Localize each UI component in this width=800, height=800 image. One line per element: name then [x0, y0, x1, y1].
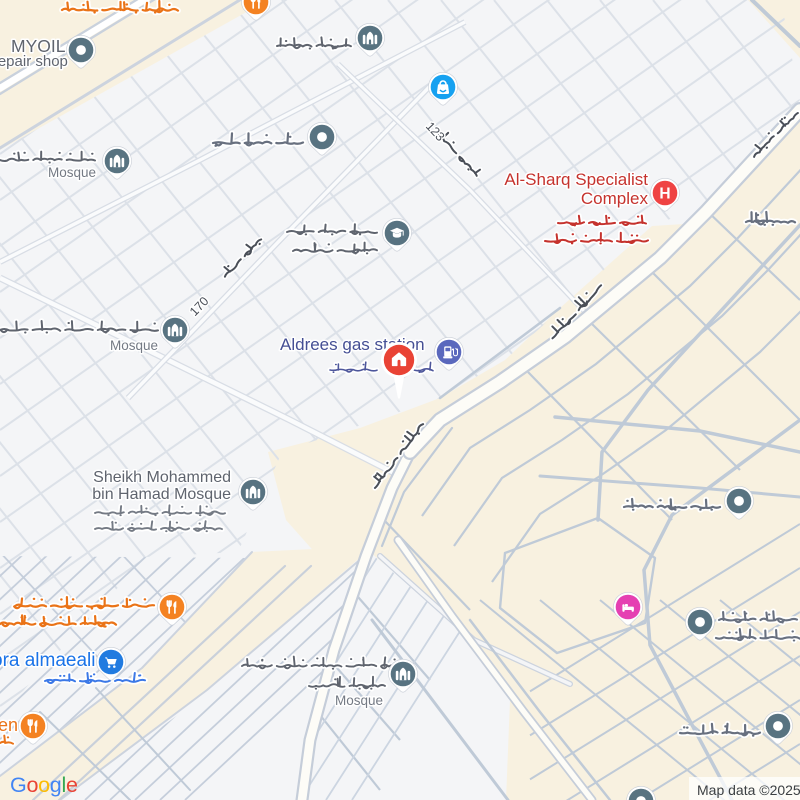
svg-text:Google: Google [10, 773, 78, 797]
svg-text:Mosque: Mosque [335, 693, 383, 708]
svg-text:H: H [659, 186, 670, 203]
svg-text:ora almaeali: ora almaeali [0, 650, 96, 671]
svg-text:Repair shop: Repair shop [0, 53, 68, 70]
svg-text:bin Hamad Mosque: bin Hamad Mosque [92, 486, 231, 503]
svg-text:en: en [0, 715, 18, 735]
svg-text:Sheikh Mohammed: Sheikh Mohammed [93, 469, 231, 486]
svg-text:Mosque: Mosque [110, 338, 158, 353]
svg-text:Complex: Complex [581, 189, 649, 208]
svg-text:Map data ©2025: Map data ©2025 [697, 782, 800, 798]
svg-text:Mosque: Mosque [48, 165, 96, 180]
svg-text:Al-Sharq Specialist: Al-Sharq Specialist [504, 170, 648, 189]
